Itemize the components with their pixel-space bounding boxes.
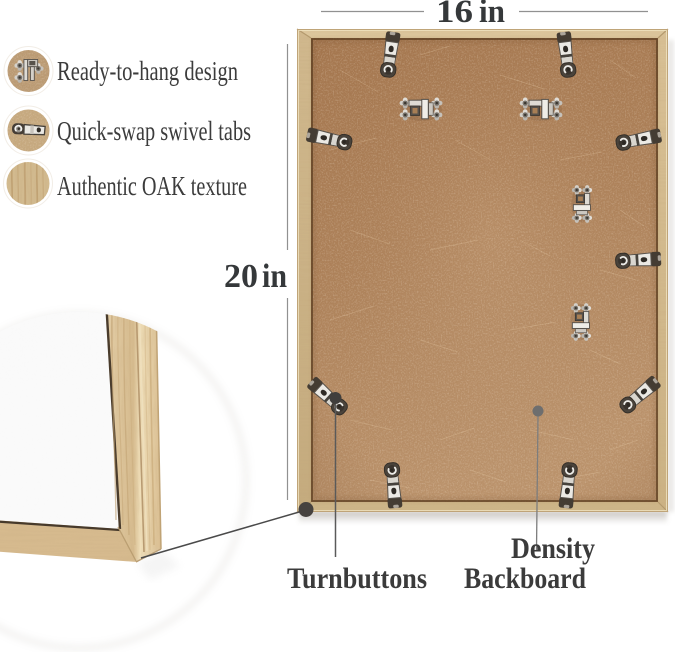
svg-text:Ready-to-hang design: Ready-to-hang design [57,56,238,86]
svg-text:Quick-swap swivel tabs: Quick-swap swivel tabs [57,116,251,146]
svg-text:16: 16 [436,0,473,30]
svg-text:Backboard: Backboard [464,562,586,595]
svg-text:in: in [479,0,505,30]
svg-text:Density: Density [511,532,595,565]
svg-text:in: in [262,258,287,295]
svg-text:Turnbuttons: Turnbuttons [287,562,427,595]
svg-text:20: 20 [224,258,258,295]
svg-text:Authentic OAK texture: Authentic OAK texture [57,171,247,201]
